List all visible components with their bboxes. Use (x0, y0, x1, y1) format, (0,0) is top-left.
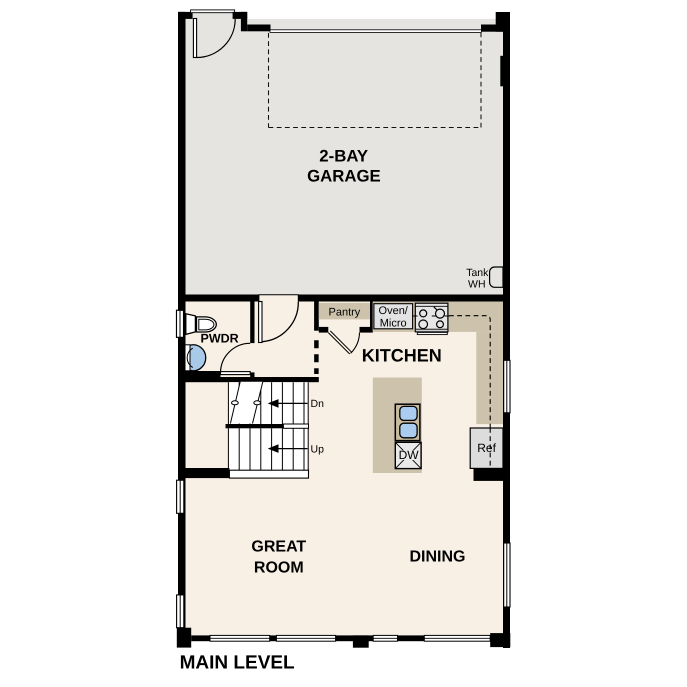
svg-text:WH: WH (468, 279, 486, 291)
svg-text:KITCHEN: KITCHEN (362, 345, 442, 365)
svg-text:GARAGE: GARAGE (307, 167, 381, 186)
svg-text:Pantry: Pantry (329, 306, 361, 318)
svg-text:GREAT: GREAT (251, 539, 306, 556)
svg-text:Dn: Dn (311, 398, 325, 410)
svg-text:Oven/: Oven/ (379, 305, 409, 317)
svg-text:DINING: DINING (410, 549, 466, 566)
svg-text:Micro: Micro (380, 317, 407, 329)
svg-text:PWDR: PWDR (200, 331, 238, 345)
svg-text:2-BAY: 2-BAY (319, 147, 368, 166)
svg-text:ROOM: ROOM (254, 560, 304, 577)
svg-text:Up: Up (311, 443, 325, 455)
svg-text:Ref: Ref (477, 441, 496, 455)
svg-text:MAIN LEVEL: MAIN LEVEL (180, 653, 295, 674)
svg-text:Tank: Tank (466, 267, 489, 279)
svg-text:DW: DW (399, 448, 420, 462)
